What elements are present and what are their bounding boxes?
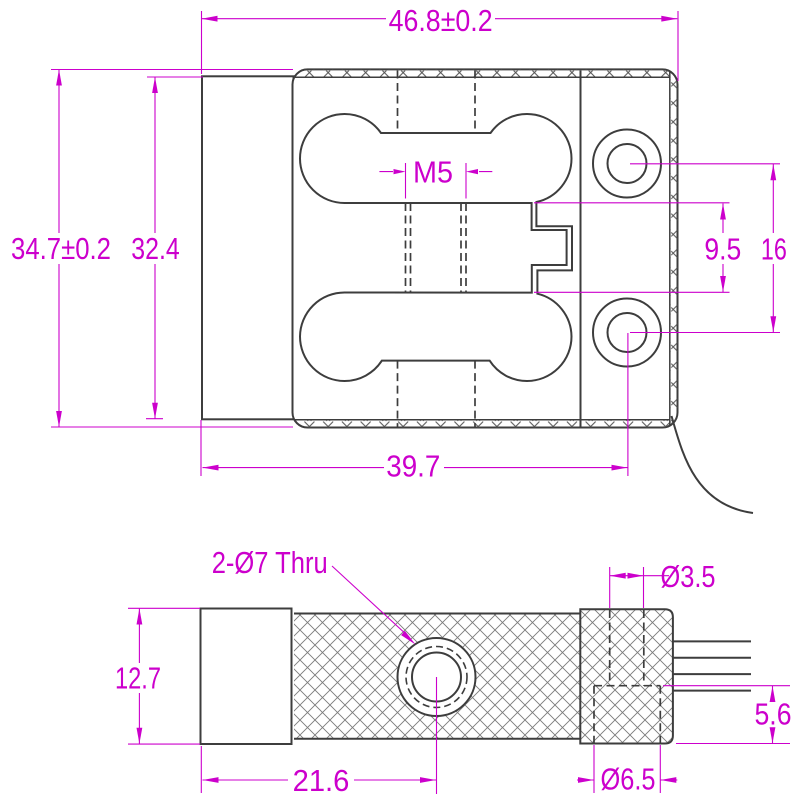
svg-text:12.7: 12.7 (115, 661, 161, 696)
svg-text:39.7: 39.7 (386, 449, 440, 484)
svg-text:32.4: 32.4 (131, 231, 179, 266)
svg-text:21.6: 21.6 (293, 763, 350, 798)
svg-text:Ø3.5: Ø3.5 (661, 559, 716, 594)
svg-text:M5: M5 (413, 155, 453, 190)
svg-text:34.7±0.2: 34.7±0.2 (11, 231, 111, 266)
svg-text:46.8±0.2: 46.8±0.2 (389, 3, 493, 38)
svg-text:5.6: 5.6 (755, 697, 792, 732)
svg-text:2-Ø7 Thru: 2-Ø7 Thru (212, 545, 328, 580)
svg-text:Ø6.5: Ø6.5 (601, 762, 656, 797)
svg-text:16: 16 (761, 232, 787, 267)
svg-text:9.5: 9.5 (704, 232, 741, 267)
